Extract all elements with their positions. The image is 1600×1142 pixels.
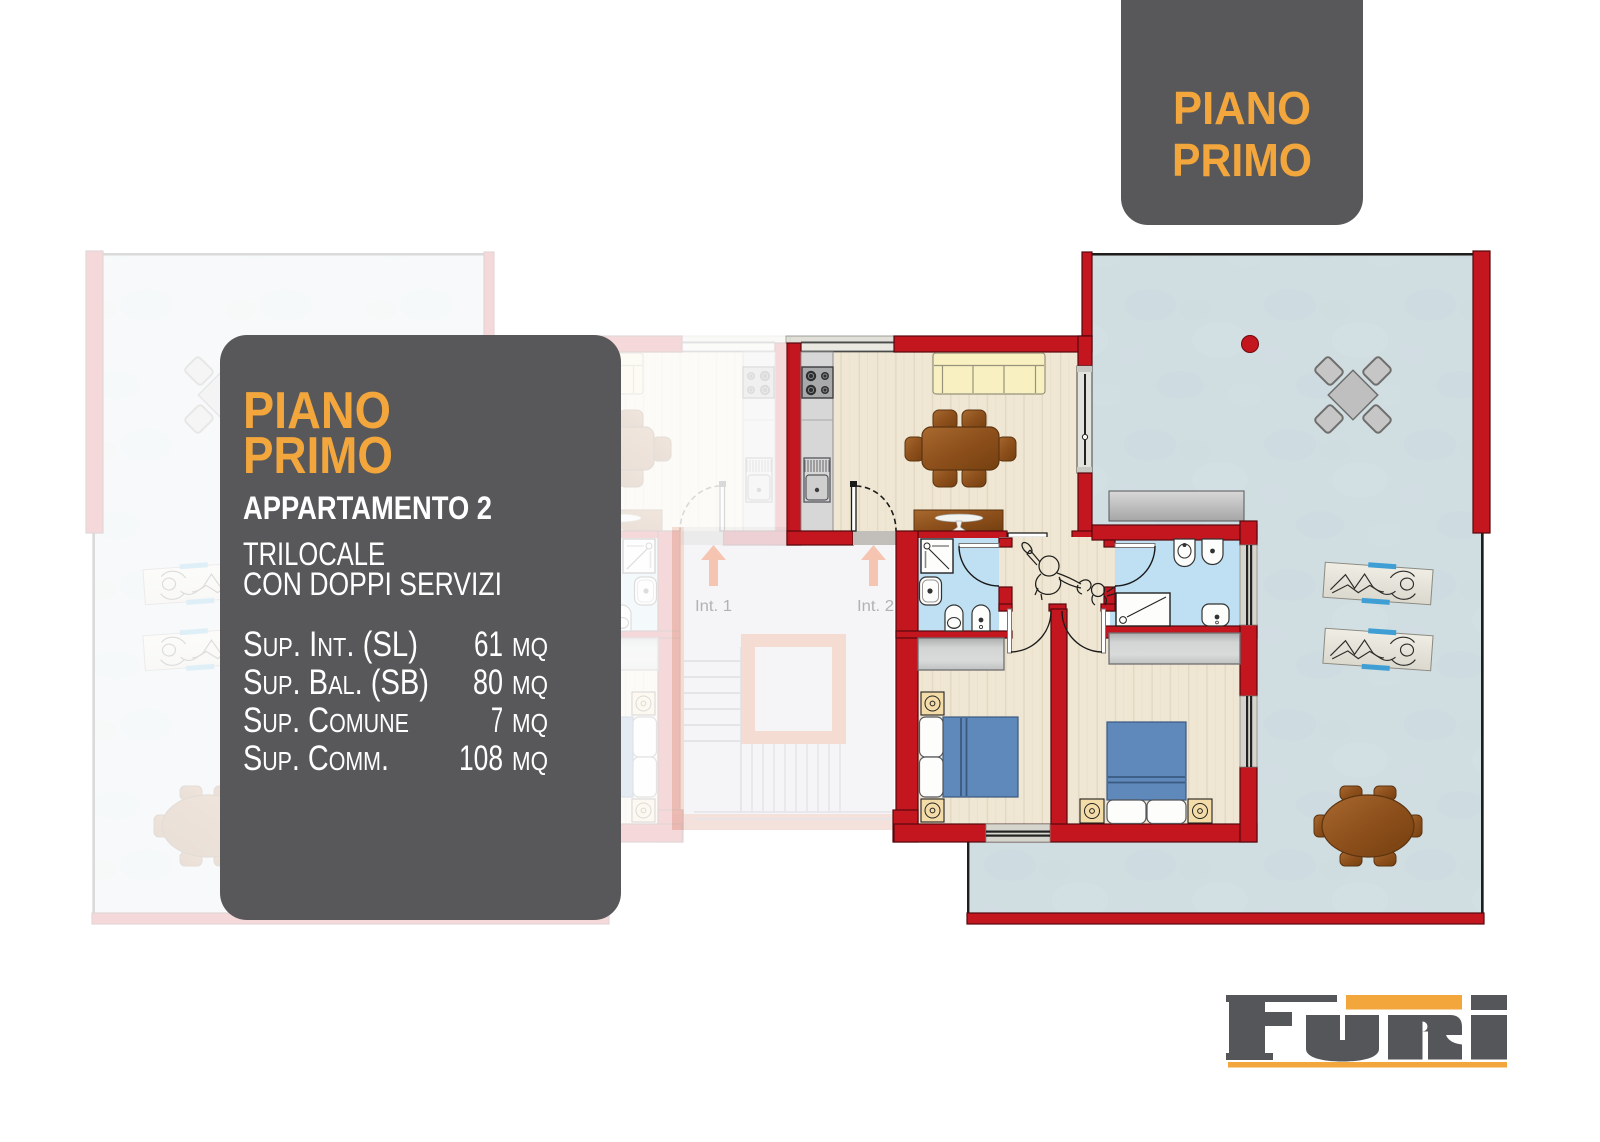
svg-text:MQ: MQ	[512, 670, 548, 700]
svg-text:PRIMO: PRIMO	[243, 427, 393, 485]
svg-text:APPARTAMENTO 2: APPARTAMENTO 2	[243, 490, 492, 526]
svg-text:PRIMO: PRIMO	[1172, 134, 1312, 186]
svg-text:CON DOPPI SERVIZI: CON DOPPI SERVIZI	[243, 566, 502, 602]
svg-text:Int. 2: Int. 2	[857, 598, 894, 615]
svg-text:108: 108	[459, 739, 503, 778]
svg-text:MQ: MQ	[512, 708, 548, 738]
svg-text:MQ: MQ	[512, 746, 548, 776]
svg-text:61: 61	[474, 625, 503, 664]
svg-text:80: 80	[473, 663, 503, 702]
svg-text:Int. 1: Int. 1	[695, 598, 732, 615]
svg-text:MQ: MQ	[512, 632, 548, 662]
svg-text:PIANO: PIANO	[1173, 82, 1311, 134]
svg-text:7: 7	[491, 701, 503, 740]
